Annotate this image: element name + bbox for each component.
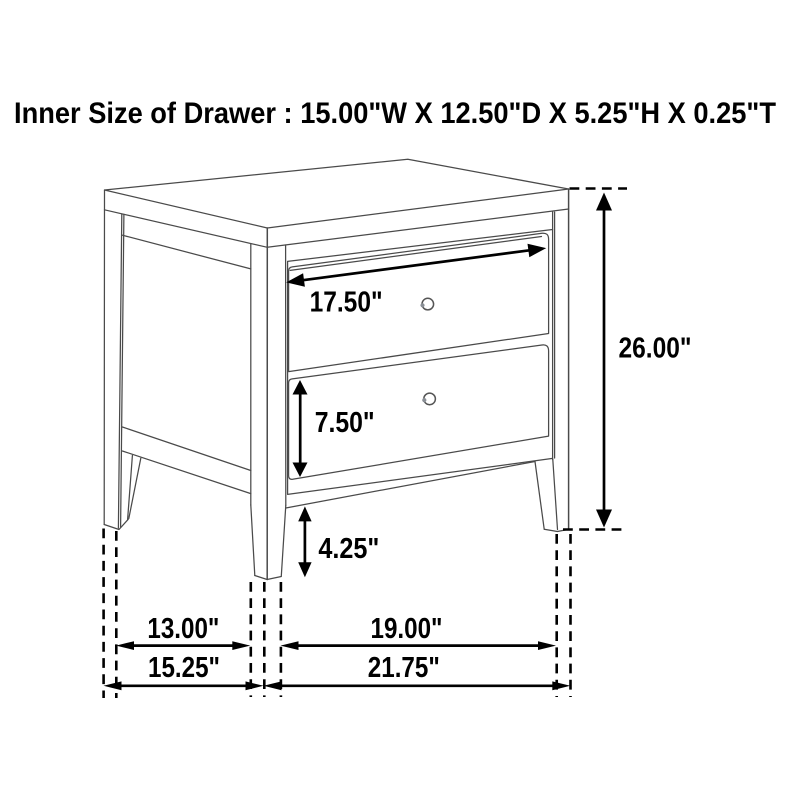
svg-text:15.25": 15.25" — [148, 652, 220, 684]
svg-text:17.50": 17.50" — [310, 287, 383, 319]
svg-text:21.75": 21.75" — [368, 652, 440, 684]
svg-text:19.00": 19.00" — [371, 613, 443, 645]
svg-text:13.00": 13.00" — [147, 613, 219, 645]
svg-text:4.25": 4.25" — [318, 533, 379, 565]
svg-text:Inner Size of Drawer : 15.00"W: Inner Size of Drawer : 15.00"W X 12.50"D… — [14, 97, 776, 130]
svg-text:26.00": 26.00" — [619, 333, 692, 365]
svg-text:7.50": 7.50" — [315, 407, 375, 439]
